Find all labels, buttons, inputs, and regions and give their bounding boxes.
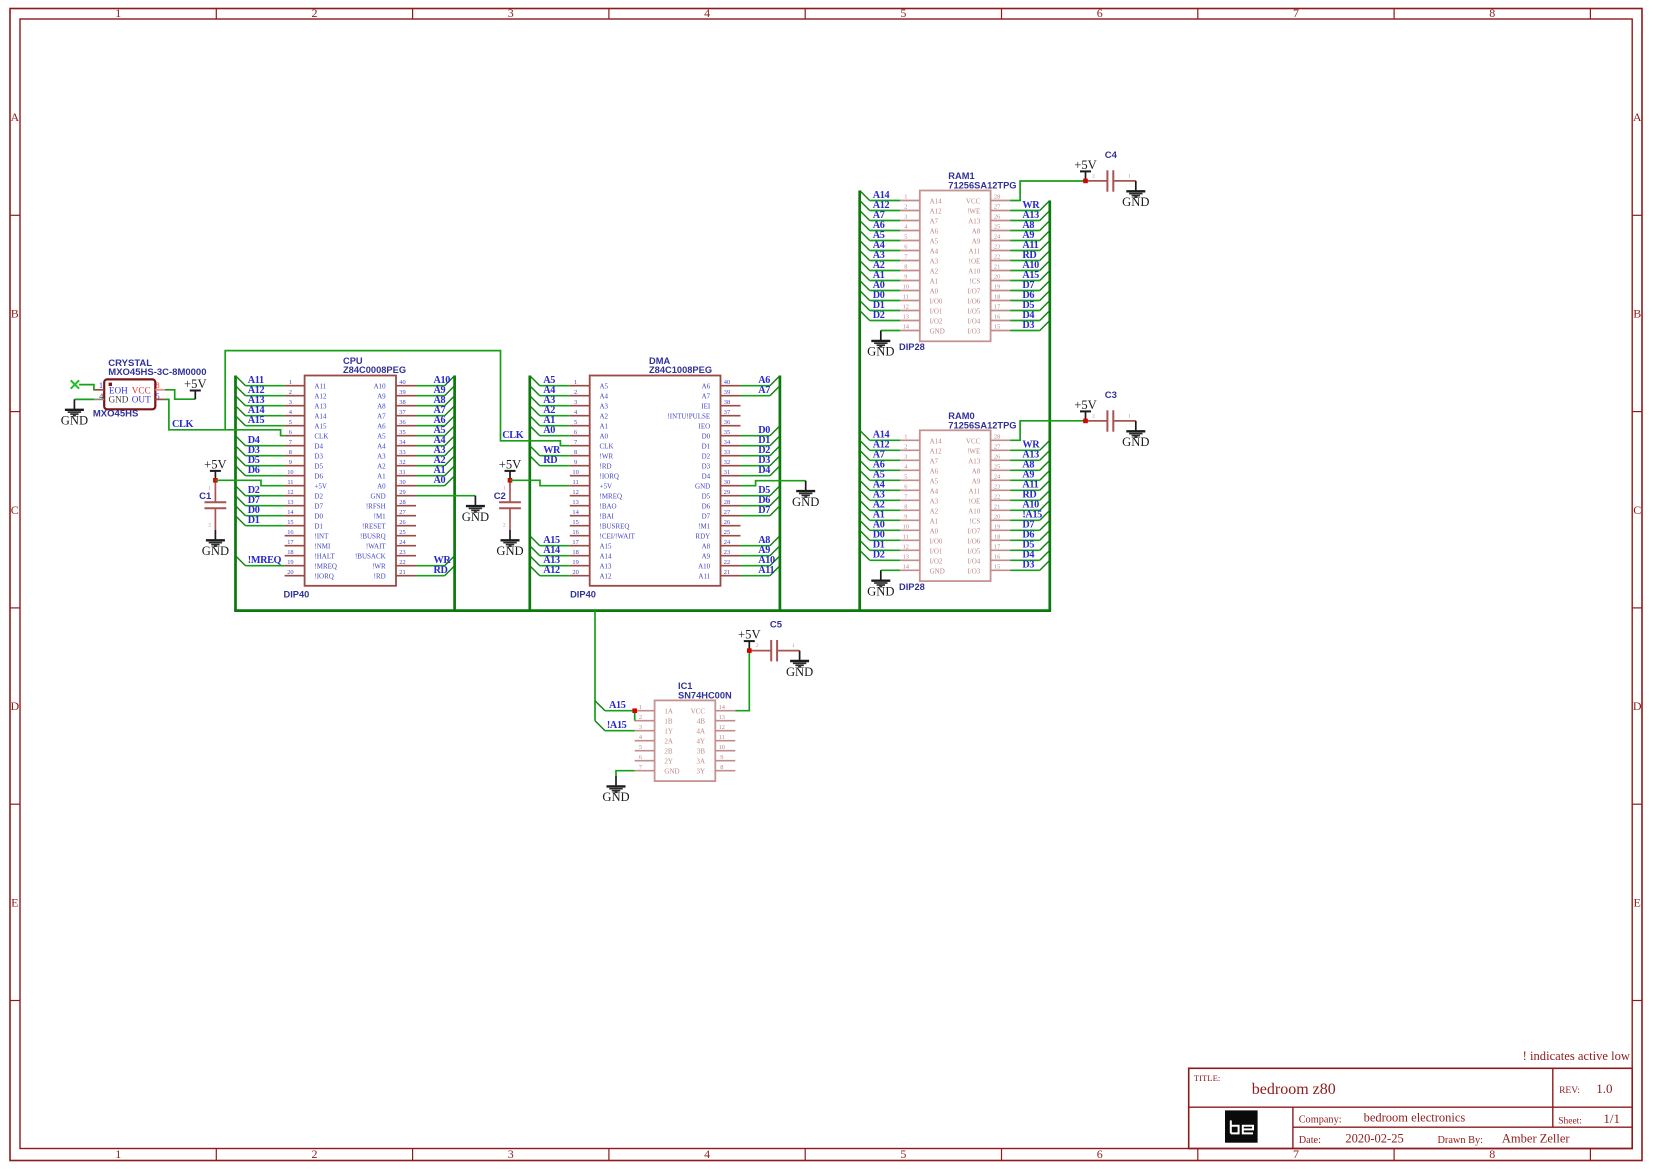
svg-text:RAM1: RAM1 [948, 171, 974, 181]
svg-text:!WAIT: !WAIT [366, 543, 387, 551]
svg-text:GND: GND [462, 510, 489, 524]
svg-text:GND: GND [664, 768, 679, 776]
svg-text:10: 10 [719, 744, 725, 751]
svg-text:!OE: !OE [969, 497, 981, 505]
svg-text:25: 25 [724, 529, 730, 536]
svg-text:1: 1 [115, 1147, 121, 1161]
svg-text:2: 2 [639, 714, 642, 721]
svg-text:I/O4: I/O4 [967, 557, 980, 565]
svg-text:A13: A13 [968, 218, 981, 226]
svg-text:2: 2 [904, 443, 907, 450]
svg-text:C1: C1 [199, 491, 212, 502]
svg-text:VCC: VCC [966, 437, 981, 445]
svg-text:10: 10 [903, 284, 909, 291]
svg-text:19: 19 [994, 523, 1000, 530]
svg-text:18: 18 [572, 549, 578, 556]
svg-text:D2: D2 [702, 453, 711, 461]
svg-text:A13: A13 [600, 563, 613, 571]
svg-text:2: 2 [904, 204, 907, 211]
svg-text:36: 36 [724, 419, 730, 426]
svg-text:C5: C5 [770, 619, 783, 630]
svg-text:A6: A6 [702, 383, 711, 391]
svg-text:D2: D2 [314, 493, 323, 501]
svg-text:10: 10 [903, 523, 909, 530]
svg-text:B: B [1633, 307, 1641, 321]
svg-text:+5V: +5V [1074, 158, 1097, 172]
svg-text:+5V: +5V [499, 457, 522, 471]
svg-text:RD: RD [434, 565, 448, 576]
svg-text:!IORQ: !IORQ [600, 473, 619, 481]
svg-text:14: 14 [903, 324, 910, 331]
svg-text:8: 8 [720, 764, 723, 771]
svg-text:VCC: VCC [691, 708, 706, 716]
svg-text:4: 4 [704, 6, 710, 20]
svg-text:I/O7: I/O7 [967, 288, 980, 296]
svg-text:A7: A7 [377, 413, 386, 421]
svg-text:12: 12 [903, 304, 909, 311]
svg-text:D2: D2 [873, 550, 885, 561]
svg-text:GND: GND [371, 493, 386, 501]
svg-text:38: 38 [724, 399, 730, 406]
svg-text:8: 8 [1489, 6, 1495, 20]
svg-text:!INTU!PULSE: !INTU!PULSE [667, 413, 710, 421]
svg-text:13: 13 [903, 314, 909, 321]
svg-text:GND: GND [867, 585, 894, 599]
svg-text:RDY: RDY [695, 533, 710, 541]
svg-text:A12: A12 [600, 573, 613, 581]
svg-text:A8: A8 [972, 228, 981, 236]
svg-text:D7: D7 [702, 513, 711, 521]
svg-text:D6: D6 [702, 503, 711, 511]
svg-text:A0: A0 [434, 475, 446, 486]
svg-text:1B: 1B [664, 718, 673, 726]
svg-text:A12: A12 [930, 447, 943, 455]
svg-text:3A: 3A [696, 758, 705, 766]
svg-text:6: 6 [574, 429, 577, 436]
svg-text:23: 23 [399, 549, 405, 556]
svg-text:Company:: Company: [1299, 1115, 1342, 1126]
svg-text:16: 16 [994, 314, 1000, 321]
svg-text:71256SA12TPG: 71256SA12TPG [948, 181, 1016, 191]
svg-text:GND: GND [1122, 195, 1149, 209]
svg-text:15: 15 [994, 563, 1000, 570]
svg-text:A9: A9 [702, 553, 711, 561]
svg-text:D5: D5 [314, 463, 323, 471]
svg-text:40: 40 [724, 379, 730, 386]
svg-text:34: 34 [724, 439, 731, 446]
svg-text:A3: A3 [377, 453, 386, 461]
svg-text:VCC: VCC [966, 198, 981, 206]
svg-text:D: D [1633, 699, 1642, 713]
svg-text:D2: D2 [873, 310, 885, 321]
svg-text:A10: A10 [968, 268, 981, 276]
svg-text:D3: D3 [314, 453, 323, 461]
svg-text:17: 17 [994, 304, 1001, 311]
svg-text:+5V: +5V [314, 483, 327, 491]
svg-text:GND: GND [602, 790, 629, 804]
svg-text:A12: A12 [543, 565, 560, 576]
svg-text:11: 11 [287, 479, 293, 486]
svg-text:Sheet:: Sheet: [1558, 1117, 1582, 1127]
svg-text:5: 5 [900, 6, 906, 20]
svg-text:A12: A12 [930, 208, 943, 216]
svg-text:24: 24 [399, 539, 406, 546]
svg-text:18: 18 [994, 533, 1000, 540]
svg-text:D: D [10, 699, 19, 713]
svg-text:GND: GND [109, 395, 129, 405]
svg-text:I/O3: I/O3 [967, 328, 980, 336]
svg-text:9: 9 [904, 274, 907, 281]
svg-text:10: 10 [287, 469, 293, 476]
svg-text:9: 9 [574, 459, 577, 466]
svg-text:Date:: Date: [1299, 1135, 1321, 1146]
svg-text:IEO: IEO [699, 423, 711, 431]
svg-text:!MREQ: !MREQ [248, 555, 282, 566]
svg-text:26: 26 [399, 519, 405, 526]
svg-text:28: 28 [399, 499, 405, 506]
svg-text:A6: A6 [377, 423, 386, 431]
svg-text:26: 26 [724, 519, 730, 526]
svg-text:I/O1: I/O1 [930, 308, 943, 316]
svg-text:A4: A4 [930, 487, 939, 495]
svg-text:27: 27 [994, 204, 1001, 211]
svg-text:7: 7 [1293, 6, 1299, 20]
svg-text:I/O1: I/O1 [930, 547, 943, 555]
svg-text:16: 16 [572, 529, 578, 536]
svg-text:D3: D3 [1022, 560, 1034, 571]
svg-text:9: 9 [720, 754, 723, 761]
svg-text:GND: GND [1122, 435, 1149, 449]
svg-text:25: 25 [399, 529, 405, 536]
svg-text:35: 35 [399, 429, 405, 436]
svg-text:GND: GND [202, 544, 229, 558]
svg-text:11: 11 [903, 533, 909, 540]
svg-text:!M1: !M1 [374, 513, 387, 521]
svg-text:14: 14 [287, 509, 294, 516]
svg-text:C4: C4 [1105, 150, 1118, 161]
svg-text:GND: GND [61, 414, 88, 428]
svg-text:3Y: 3Y [696, 768, 705, 776]
svg-text:26: 26 [994, 453, 1000, 460]
svg-text:I/O0: I/O0 [930, 537, 943, 545]
svg-text:bedroom electronics: bedroom electronics [1364, 1111, 1466, 1125]
svg-text:29: 29 [399, 489, 405, 496]
svg-text:I/O6: I/O6 [967, 298, 980, 306]
svg-text:D4: D4 [314, 443, 323, 451]
svg-text:3: 3 [289, 399, 292, 406]
svg-text:20: 20 [994, 274, 1000, 281]
svg-text:12: 12 [903, 543, 909, 550]
svg-text:!BUSREQ: !BUSREQ [600, 523, 630, 531]
svg-text:11: 11 [573, 479, 579, 486]
svg-text:20: 20 [572, 569, 578, 576]
svg-text:20: 20 [287, 569, 293, 576]
svg-text:18: 18 [287, 549, 293, 556]
svg-text:A3: A3 [600, 403, 609, 411]
svg-text:C: C [11, 503, 19, 517]
svg-text:A9: A9 [972, 477, 981, 485]
svg-text:!WR: !WR [372, 563, 386, 571]
svg-text:REV:: REV: [1559, 1086, 1580, 1096]
svg-text:A1: A1 [600, 423, 609, 431]
svg-text:6: 6 [904, 244, 907, 251]
svg-text:C2: C2 [494, 491, 506, 502]
svg-text:A12: A12 [314, 393, 327, 401]
svg-text:!RESET: !RESET [362, 523, 386, 531]
svg-text:A8: A8 [377, 403, 386, 411]
svg-text:A5: A5 [930, 238, 939, 246]
svg-text:DIP40: DIP40 [570, 590, 596, 600]
svg-text:22: 22 [994, 254, 1000, 261]
svg-text:34: 34 [399, 439, 406, 446]
svg-text:!CEI/!WAIT: !CEI/!WAIT [600, 533, 636, 541]
svg-text:IEI: IEI [701, 403, 711, 411]
svg-text:C: C [1633, 503, 1641, 517]
svg-text:17: 17 [994, 543, 1001, 550]
svg-text:37: 37 [724, 409, 731, 416]
svg-text:A11: A11 [314, 383, 326, 391]
svg-text:23: 23 [994, 483, 1000, 490]
svg-text:2Y: 2Y [664, 758, 673, 766]
svg-text:A: A [10, 110, 19, 124]
svg-text:22: 22 [399, 559, 405, 566]
svg-text:GND: GND [496, 544, 523, 558]
svg-text:D4: D4 [702, 473, 711, 481]
svg-text:A: A [1633, 110, 1642, 124]
svg-text:A8: A8 [972, 467, 981, 475]
svg-text:A2: A2 [600, 413, 609, 421]
svg-text:A4: A4 [930, 248, 939, 256]
svg-text:D3: D3 [1022, 320, 1034, 331]
svg-text:6: 6 [1097, 6, 1103, 20]
svg-text:A10: A10 [374, 383, 387, 391]
svg-text:D6: D6 [248, 465, 260, 476]
svg-text:A8: A8 [702, 543, 711, 551]
svg-text:!BUSACK: !BUSACK [355, 553, 386, 561]
svg-text:A3: A3 [930, 258, 939, 266]
svg-text:13: 13 [287, 499, 293, 506]
svg-text:+5V: +5V [184, 377, 207, 391]
svg-text:14: 14 [572, 509, 579, 516]
svg-text:A13: A13 [968, 457, 981, 465]
svg-text:25: 25 [994, 463, 1000, 470]
svg-text:DIP40: DIP40 [284, 590, 310, 600]
svg-text:24: 24 [994, 234, 1001, 241]
svg-text:D0: D0 [314, 513, 323, 521]
svg-text:!RD: !RD [600, 463, 612, 471]
svg-text:!IORQ: !IORQ [314, 573, 333, 581]
svg-text:D6: D6 [314, 473, 323, 481]
svg-text:8: 8 [574, 449, 577, 456]
svg-text:19: 19 [994, 284, 1000, 291]
svg-text:1: 1 [289, 379, 292, 386]
svg-text:A15: A15 [314, 423, 327, 431]
svg-text:2: 2 [312, 6, 318, 20]
svg-text:22: 22 [724, 559, 730, 566]
svg-text:A5: A5 [377, 433, 386, 441]
svg-text:DIP28: DIP28 [899, 342, 925, 352]
svg-text:bedroom z80: bedroom z80 [1252, 1081, 1336, 1098]
svg-text:1: 1 [904, 194, 907, 201]
svg-text:!WE: !WE [967, 447, 980, 455]
svg-text:GND: GND [867, 345, 894, 359]
svg-text:6: 6 [289, 429, 292, 436]
svg-text:B: B [11, 307, 19, 321]
svg-text:I/O3: I/O3 [967, 567, 980, 575]
svg-text:19: 19 [287, 559, 293, 566]
svg-text:1Y: 1Y [664, 728, 673, 736]
svg-text:A9: A9 [972, 238, 981, 246]
svg-text:GND: GND [695, 483, 710, 491]
svg-text:A15: A15 [609, 700, 626, 711]
svg-text:A11: A11 [969, 487, 981, 495]
svg-text:!RFSH: !RFSH [366, 503, 386, 511]
svg-text:CLK: CLK [314, 433, 328, 441]
svg-text:Amber Zeller: Amber Zeller [1502, 1132, 1571, 1146]
svg-text:5: 5 [900, 1147, 906, 1161]
svg-text:15: 15 [994, 324, 1000, 331]
svg-text:3: 3 [904, 214, 907, 221]
svg-text:A0: A0 [600, 433, 609, 441]
svg-text:A2: A2 [377, 463, 386, 471]
svg-text:!HALT: !HALT [314, 553, 335, 561]
svg-text:6: 6 [904, 483, 907, 490]
svg-text:21: 21 [994, 264, 1000, 271]
svg-text:A5: A5 [600, 383, 609, 391]
svg-text:A14: A14 [314, 413, 327, 421]
svg-text:!RD: !RD [374, 573, 386, 581]
svg-text:5: 5 [289, 419, 292, 426]
svg-text:D3: D3 [702, 463, 711, 471]
svg-text:A13: A13 [314, 403, 327, 411]
svg-text:D4: D4 [758, 465, 770, 476]
svg-text:16: 16 [994, 553, 1000, 560]
svg-text:20: 20 [994, 513, 1000, 520]
svg-text:32: 32 [724, 459, 730, 466]
svg-text:A3: A3 [930, 497, 939, 505]
svg-text:3: 3 [508, 6, 514, 20]
svg-text:8: 8 [289, 449, 292, 456]
svg-text:1/1: 1/1 [1603, 1111, 1620, 1126]
svg-text:A14: A14 [930, 437, 943, 445]
svg-text:A11: A11 [698, 573, 710, 581]
svg-text:+5V: +5V [600, 483, 613, 491]
svg-text:A0: A0 [930, 527, 939, 535]
svg-text:A0: A0 [543, 425, 555, 436]
svg-text:9: 9 [289, 459, 292, 466]
svg-text:28: 28 [994, 194, 1000, 201]
svg-text:A14: A14 [930, 198, 943, 206]
svg-text:29: 29 [724, 489, 730, 496]
svg-text:31: 31 [724, 469, 730, 476]
svg-text:I/O5: I/O5 [967, 308, 980, 316]
svg-text:1: 1 [115, 6, 121, 20]
svg-text:+5V: +5V [204, 457, 227, 471]
svg-text:13: 13 [719, 714, 725, 721]
svg-text:!INT: !INT [314, 533, 329, 541]
svg-text:6: 6 [639, 754, 642, 761]
svg-text:A6: A6 [930, 467, 939, 475]
svg-text:CLK: CLK [502, 430, 523, 441]
svg-text:! indicates active low: ! indicates active low [1523, 1049, 1631, 1063]
svg-text:A7: A7 [758, 385, 770, 396]
svg-text:TITLE:: TITLE: [1194, 1073, 1221, 1083]
svg-text:D1: D1 [702, 443, 711, 451]
svg-text:24: 24 [994, 473, 1001, 480]
svg-text:C3: C3 [1105, 390, 1117, 401]
svg-text:A11: A11 [969, 248, 981, 256]
svg-text:A10: A10 [698, 563, 711, 571]
svg-text:Z84C1008PEG: Z84C1008PEG [649, 365, 712, 375]
svg-text:39: 39 [399, 389, 405, 396]
svg-text:26: 26 [994, 214, 1000, 221]
svg-text:2: 2 [574, 389, 577, 396]
svg-text:5: 5 [904, 473, 907, 480]
svg-text:22: 22 [994, 493, 1000, 500]
svg-text:4Y: 4Y [696, 738, 705, 746]
svg-text:+5V: +5V [1074, 398, 1097, 412]
svg-text:1.0: 1.0 [1596, 1081, 1612, 1096]
svg-text:12: 12 [719, 724, 725, 731]
svg-text:33: 33 [724, 449, 730, 456]
svg-text:A14: A14 [600, 553, 613, 561]
svg-text:23: 23 [724, 549, 730, 556]
svg-text:3: 3 [574, 399, 577, 406]
svg-text:!NMI: !NMI [314, 543, 331, 551]
svg-text:!OE: !OE [969, 258, 981, 266]
svg-text:2: 2 [312, 1147, 318, 1161]
svg-text:D0: D0 [702, 433, 711, 441]
svg-text:5: 5 [904, 234, 907, 241]
svg-text:31: 31 [399, 469, 405, 476]
svg-text:!A15: !A15 [607, 720, 627, 731]
svg-text:15: 15 [572, 519, 578, 526]
svg-text:A5: A5 [930, 477, 939, 485]
svg-text:I/O0: I/O0 [930, 298, 943, 306]
svg-text:D1: D1 [314, 523, 323, 531]
svg-text:9: 9 [904, 513, 907, 520]
svg-text:!BAO: !BAO [600, 503, 617, 511]
svg-text:39: 39 [724, 389, 730, 396]
svg-text:8: 8 [904, 264, 907, 271]
svg-text:A9: A9 [377, 393, 386, 401]
svg-text:E: E [1634, 895, 1641, 909]
svg-text:A15: A15 [248, 415, 265, 426]
svg-text:25: 25 [994, 224, 1000, 231]
svg-text:D7: D7 [314, 503, 323, 511]
svg-text:!CS: !CS [969, 517, 980, 525]
svg-text:27: 27 [399, 509, 406, 516]
svg-text:I/O7: I/O7 [967, 527, 980, 535]
svg-text:21: 21 [399, 569, 405, 576]
svg-text:8: 8 [904, 503, 907, 510]
svg-text:A11: A11 [758, 565, 774, 576]
svg-text:3B: 3B [697, 748, 706, 756]
svg-text:I/O2: I/O2 [930, 557, 943, 565]
svg-text:2A: 2A [664, 738, 673, 746]
svg-text:GND: GND [930, 567, 945, 575]
svg-text:30: 30 [724, 479, 730, 486]
svg-text:A10: A10 [968, 507, 981, 515]
svg-text:71256SA12TPG: 71256SA12TPG [948, 421, 1016, 431]
svg-text:CLK: CLK [172, 419, 193, 430]
svg-text:3: 3 [508, 1147, 514, 1161]
svg-text:!MREQ: !MREQ [600, 493, 623, 501]
svg-text:A7: A7 [702, 393, 711, 401]
svg-text:3: 3 [904, 453, 907, 460]
svg-text:A4: A4 [377, 443, 386, 451]
svg-text:1: 1 [904, 433, 907, 440]
